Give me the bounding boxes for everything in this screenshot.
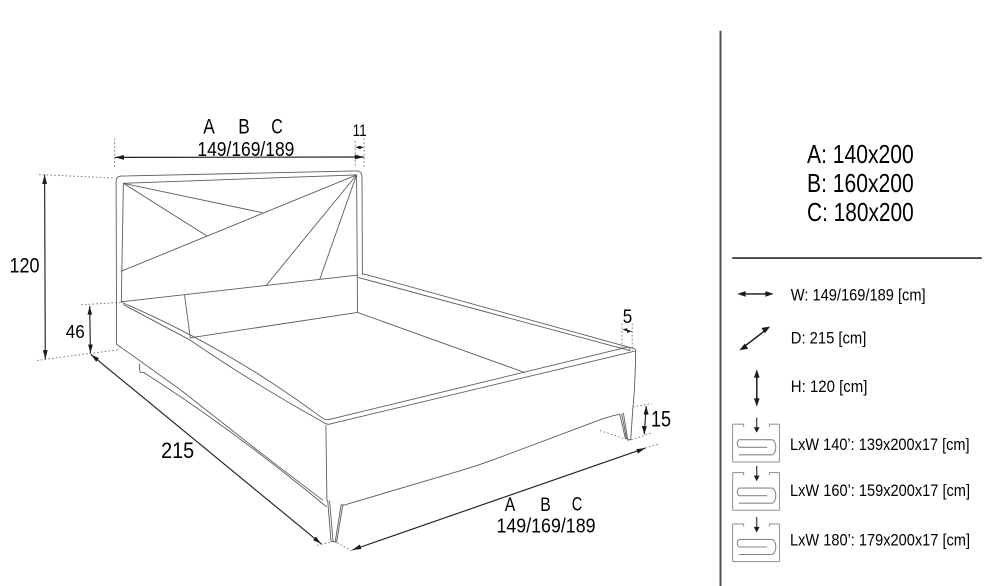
svg-text:LxW 180’: 179x200x17 [cm]: LxW 180’: 179x200x17 [cm] bbox=[790, 531, 970, 550]
svg-text:A: 140x200: A: 140x200 bbox=[807, 139, 914, 169]
svg-text:A: A bbox=[505, 495, 516, 516]
svg-text:149/169/189: 149/169/189 bbox=[197, 139, 294, 161]
svg-text:C: C bbox=[572, 494, 583, 515]
svg-text:11: 11 bbox=[353, 121, 367, 140]
svg-text:H: 120 [cm]: H: 120 [cm] bbox=[791, 377, 868, 396]
svg-text:15: 15 bbox=[651, 406, 671, 431]
svg-text:A: A bbox=[203, 116, 215, 139]
svg-text:B: B bbox=[238, 116, 250, 139]
svg-text:W: 149/169/189 [cm]: W: 149/169/189 [cm] bbox=[791, 285, 926, 304]
svg-text:LxW 140’: 139x200x17 [cm]: LxW 140’: 139x200x17 [cm] bbox=[790, 435, 970, 454]
svg-text:120: 120 bbox=[10, 254, 40, 277]
svg-text:LxW 160’: 159x200x17 [cm]: LxW 160’: 159x200x17 [cm] bbox=[790, 481, 970, 500]
svg-text:149/169/189: 149/169/189 bbox=[497, 516, 596, 538]
svg-text:C: 180x200: C: 180x200 bbox=[807, 197, 914, 227]
svg-text:D: 215 [cm]: D: 215 [cm] bbox=[791, 328, 867, 347]
svg-text:C: C bbox=[271, 116, 283, 139]
svg-text:215: 215 bbox=[161, 438, 194, 463]
svg-text:B: 160x200: B: 160x200 bbox=[807, 168, 914, 198]
svg-text:B: B bbox=[540, 495, 551, 516]
svg-text:5: 5 bbox=[623, 306, 633, 328]
svg-text:46: 46 bbox=[66, 321, 85, 342]
